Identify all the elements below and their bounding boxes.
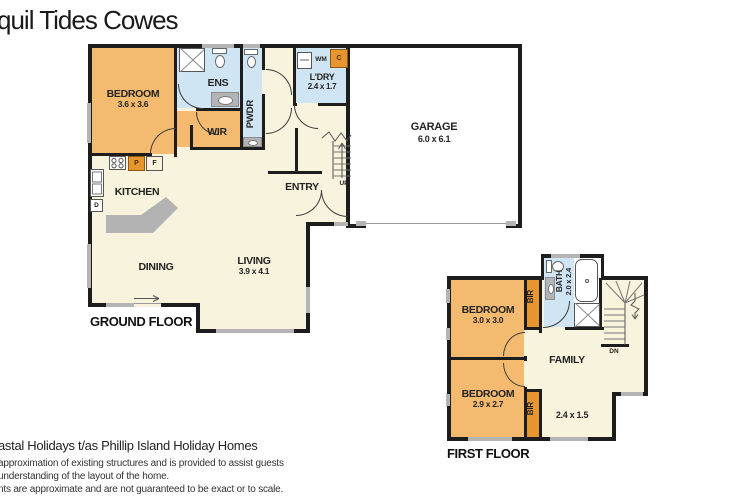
footer-company-line: astal Holidays t/as Phillip Island Holid… (0, 438, 257, 453)
footer: astal Holidays t/as Phillip Island Holid… (0, 0, 750, 500)
footer-disclaimer-line2: understanding of the layout of the home. (0, 471, 169, 482)
footer-disclaimer-line1: approximation of existing structures and… (0, 458, 284, 469)
footer-disclaimer-line3: nts are approximate and are not guarante… (0, 484, 283, 495)
floor-plan-page: quil Tides Cowes (0, 0, 750, 500)
